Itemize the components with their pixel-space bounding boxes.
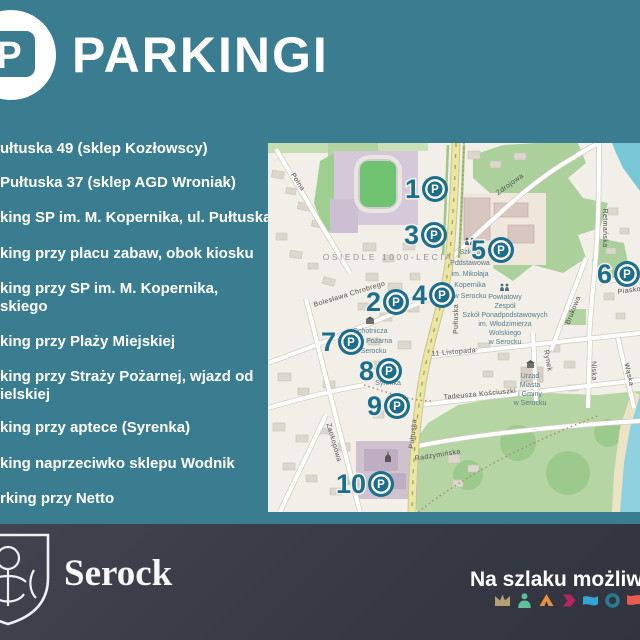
list-item-3-text: king SP im. M. Kopernika, ul. Pułtuska <box>0 209 271 226</box>
poi-line: w Serocku <box>453 293 487 300</box>
person-icon <box>516 592 533 609</box>
poi-line: im. Mikołaja <box>452 271 489 278</box>
poi-line: Powiatowy <box>488 294 522 301</box>
poi-line: Szkół Ponadpodstawowych <box>462 312 547 319</box>
list-item-2: Pułtuska 37 (sklep AGD Wroniak) <box>0 174 236 192</box>
list-item-10: rking przy Netto <box>0 490 114 508</box>
poi-line: Wolskiego <box>489 330 521 337</box>
marker-number: 2 <box>366 287 381 317</box>
marker-number: 5 <box>471 235 486 265</box>
list-item-9: king naprzeciwko sklepu Wodnik <box>0 455 235 473</box>
marker-p-icon: P <box>393 401 401 413</box>
arrow-right-icon <box>560 592 577 609</box>
marker-p-icon: P <box>385 366 393 378</box>
list-item-10-text: rking przy Netto <box>0 490 114 507</box>
marker-number: 1 <box>405 174 420 204</box>
page-title: PARKINGI <box>72 26 329 84</box>
list-item-9-text: king naprzeciwko sklepu Wodnik <box>0 455 235 472</box>
serock-coat-of-arms <box>0 530 56 630</box>
poi-line: Zespół <box>494 303 515 310</box>
list-item-5-line1: king przy SP im. M. Kopernika, <box>0 280 218 298</box>
city-name: Serock <box>64 552 172 595</box>
list-item-1-text: ułtuska 49 (sklep Kozłowscy) <box>0 140 208 157</box>
list-item-2-text: Pułtuska 37 (sklep AGD Wroniak) <box>0 174 236 191</box>
parking-p-icon: P <box>0 35 22 77</box>
area-label-osiedle: OSIEDLE 1000-LECIA <box>323 252 454 262</box>
street-label-niska: Niska <box>590 361 598 381</box>
poi-line: Urząd <box>521 373 540 380</box>
marker-p-icon: P <box>438 290 446 302</box>
list-item-4: king przy placu zabaw, obok kiosku <box>0 245 254 263</box>
list-item-7-line1: king przy Straży Pożarnej, wjazd od <box>0 368 253 386</box>
list-item-3: king SP im. M. Kopernika, ul. Pułtuska <box>0 209 271 227</box>
list-item-4-text: king przy placu zabaw, obok kiosku <box>0 245 254 262</box>
list-item-8: king przy aptece (Syrenka) <box>0 419 190 437</box>
marker-p-icon: P <box>430 230 438 242</box>
list-item-6-text: king przy Plaży Miejskiej <box>0 333 175 350</box>
list-item-8-text: king przy aptece (Syrenka) <box>0 419 190 436</box>
list-item-5: king przy SP im. M. Kopernika,skiego <box>0 280 218 316</box>
poi-line: w Serocku <box>488 339 522 346</box>
list-item-7: king przy Straży Pożarnej, wjazd odielsk… <box>0 368 253 404</box>
marker-number: 8 <box>359 356 374 386</box>
tent-icon <box>538 592 555 609</box>
list-item-6: king przy Plaży Miejskiej <box>0 333 175 351</box>
footer-slogan: Na szlaku możliwości <box>470 568 640 592</box>
marker-number: 7 <box>321 327 336 357</box>
crown-m-icon <box>494 592 511 609</box>
marker-number: 4 <box>412 280 427 310</box>
list-item-5-line2: skiego <box>0 298 218 316</box>
marker-p-icon: P <box>347 337 355 349</box>
list-item-7-line2: ielskiej <box>0 386 253 404</box>
map-marker-10[interactable]: 10 P <box>336 469 394 499</box>
marker-number: 9 <box>367 391 382 421</box>
street-label-pultuska-upper: Pułtuska <box>453 304 460 334</box>
marker-number: 10 <box>336 469 366 499</box>
marker-number: 3 <box>404 220 419 250</box>
marker-p-icon: P <box>497 245 505 257</box>
poi-line: im. Włodzimierza <box>478 321 531 328</box>
marker-p-icon: P <box>431 184 439 196</box>
flag-icon <box>582 592 599 609</box>
poi-line: Miasta <box>520 382 541 389</box>
slogan-icon-row <box>494 592 640 609</box>
ring-icon <box>604 592 621 609</box>
poi-line: w Serocku <box>513 400 547 407</box>
footer-bar: Serock Na szlaku możliwości <box>0 524 640 640</box>
marker-p-icon: P <box>377 479 385 491</box>
marker-number: 6 <box>597 259 612 289</box>
banner-icon <box>626 592 640 609</box>
infographic-canvas: P PARKINGI ułtuska 49 (sklep Kozłowscy) … <box>0 0 640 640</box>
marker-p-icon: P <box>623 269 631 281</box>
street-label-retmanska: Retmańska <box>601 208 608 247</box>
marker-p-icon: P <box>392 297 400 309</box>
list-item-1: ułtuska 49 (sklep Kozłowscy) <box>0 140 208 158</box>
poi-line: i Gminy <box>518 391 542 398</box>
poi-line: Kopernika <box>454 282 486 289</box>
city-map[interactable]: OSIEDLE 1000-LECIA Polna Bolesława Chrob… <box>268 143 640 512</box>
